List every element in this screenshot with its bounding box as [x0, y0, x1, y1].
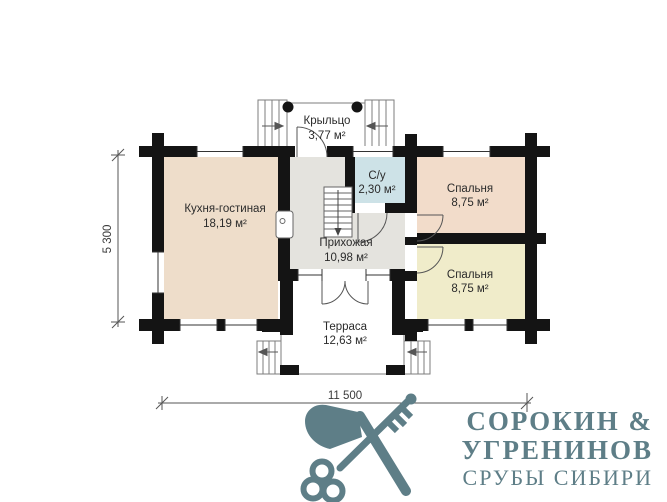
room-bedroom-bottom [417, 244, 525, 319]
log-end [405, 331, 417, 341]
label-bathroom-area: 2,30 м² [358, 184, 395, 196]
log-end [152, 133, 164, 146]
bathroom-opening [355, 203, 385, 213]
label-hallway-area: 10,98 м² [324, 252, 368, 264]
label-hallway-name: Прихожая [319, 237, 372, 249]
room-kitchen-living [164, 157, 278, 319]
window [197, 146, 243, 157]
log-end [152, 331, 164, 344]
window [366, 269, 390, 281]
label-bedroom-bottom-name: Спальня [447, 269, 493, 281]
log-end [139, 146, 152, 157]
porch-post-right [352, 102, 363, 113]
log-end [525, 133, 537, 146]
bedroom-bottom-opening [405, 245, 417, 271]
label-bedroom-bottom-area: 8,75 м² [451, 283, 488, 295]
logo-line-3: СРУБЫ СИБИРИ [463, 465, 653, 490]
window [473, 319, 507, 331]
label-bedroom-top-name: Спальня [447, 183, 493, 195]
window [443, 146, 490, 157]
boiler-fixture [276, 211, 293, 238]
floor-plan-drawing: Крыльцо 3,77 м² Кухня-гостиная 18,19 м² … [0, 0, 667, 502]
floor-plan-page: Крыльцо 3,77 м² Кухня-гостиная 18,19 м² … [0, 0, 667, 502]
log-end [392, 319, 423, 332]
bedroom-top-opening [405, 213, 417, 237]
wall-bedrooms-divider [405, 233, 546, 244]
label-bedroom-top-area: 8,75 м² [451, 197, 488, 209]
label-terrace-area: 12,63 м² [323, 335, 367, 347]
logo: СОРОКИН & УГРЕНИНОВ СРУБЫ СИБИРИ [304, 394, 654, 501]
dimension-height-value: 5 300 [102, 225, 114, 254]
log-end [262, 319, 292, 332]
entrance-opening [295, 146, 327, 157]
window [152, 252, 164, 293]
window [298, 269, 322, 281]
dimension-width-value: 11 500 [328, 390, 362, 402]
log-end [537, 319, 550, 331]
label-bathroom-name: С/у [368, 170, 386, 182]
label-kitchen-area: 18,19 м² [203, 218, 247, 230]
log-end [405, 134, 417, 146]
log-end [525, 331, 537, 344]
logo-line-2: УГРЕНИНОВ [461, 435, 653, 465]
axe-key-icon [304, 394, 417, 501]
label-terrace-name: Терраса [323, 321, 368, 333]
window [353, 146, 393, 157]
logo-line-1: СОРОКИН & [466, 406, 653, 436]
logo-text: СОРОКИН & УГРЕНИНОВ СРУБЫ СИБИРИ [461, 406, 653, 490]
label-kitchen-name: Кухня-гостиная [184, 203, 265, 215]
terrace-post-bl [280, 365, 299, 375]
window [428, 319, 465, 331]
porch-post-left [283, 102, 294, 113]
label-porch-area: 3,77 м² [308, 130, 345, 142]
interior-stairs [324, 187, 352, 237]
log-end [139, 319, 152, 331]
log-end [537, 146, 550, 157]
window [225, 319, 257, 331]
room-bedroom-top [417, 157, 525, 233]
terrace-stair-right [404, 341, 430, 374]
wall-left [152, 146, 164, 331]
terrace-door-opening [322, 269, 368, 281]
terrace-post-br [386, 365, 405, 375]
wall-kitchen-hall-upper [278, 157, 290, 212]
window [180, 319, 217, 331]
label-porch-name: Крыльцо [304, 115, 351, 127]
